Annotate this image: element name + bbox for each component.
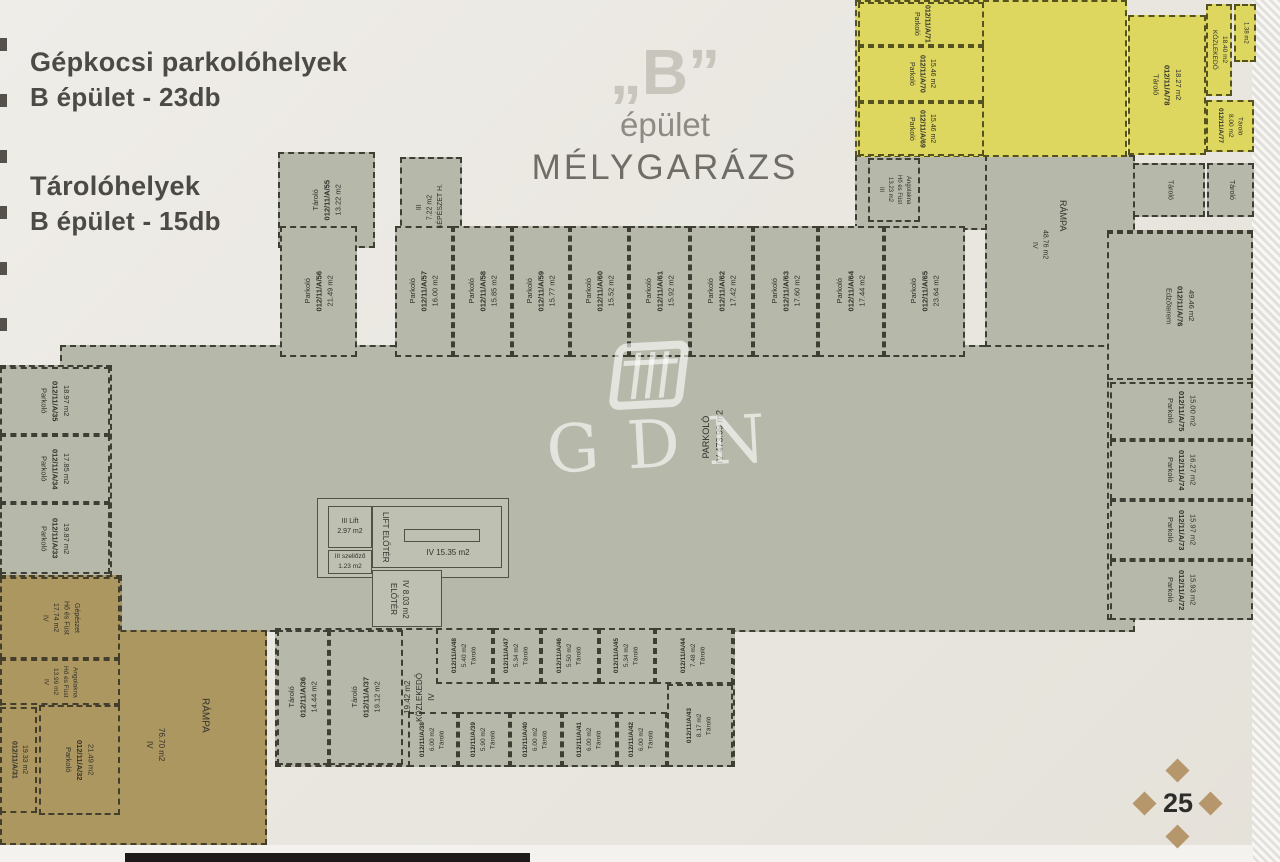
label-line: Tároló [522, 638, 532, 673]
label-line: 012/11/A/64 [845, 271, 856, 311]
room-y71: Parkoló012/11/A/71 [858, 2, 984, 46]
room-stair [404, 529, 480, 542]
label-parkolo-main: PARKOLÓIV 473.99 m2 [690, 378, 736, 496]
room-label: IV76.70 m2 [143, 728, 167, 761]
label-line: ELŐTÉR [387, 580, 399, 619]
label-line: 15.93 m2 [1187, 570, 1198, 610]
label-line: III szellőző [335, 552, 366, 562]
label-line: Parkoló [302, 271, 313, 311]
label-line: 5.40 m2 [460, 638, 470, 673]
room-y70: Parkoló012/11/A/7015.46 m2 [858, 46, 984, 102]
label-eloter: ELŐTÉRIV 8.03 m2 [382, 574, 416, 624]
room-a63: Parkoló012/11/A/6317.60 m2 [753, 226, 818, 357]
title-building-letter: „B” [520, 40, 810, 104]
room-label: Parkoló012/11/A/7416.27 m2 [1165, 450, 1199, 490]
label-line: 19.42 m2 [402, 673, 414, 722]
label-line: 012/11/A/69 [916, 110, 927, 148]
label-line: 21.49 m2 [324, 271, 335, 311]
room-a35: Parkoló012/11/A/3518.97 m2 [0, 367, 110, 435]
room-tarolo-ne1: Tároló [1133, 163, 1205, 217]
label-line: Tároló [438, 722, 448, 757]
room-label: Tároló012/11/A/3614.44 m2 [286, 677, 320, 717]
label-line: 5.34 m2 [622, 638, 632, 673]
label-rampa-ne: RÁMPA [1050, 172, 1074, 260]
label-line: 012/11/A/76 [1174, 286, 1185, 326]
room-label: Parkoló012/11/A/3221.49 m2 [63, 740, 97, 780]
room-label: Tároló [1164, 180, 1175, 200]
label-lift-eloter-area: IV 15.35 m2 [408, 546, 488, 560]
label-line: Angolakna [903, 175, 912, 204]
page-number: 25 [1160, 788, 1196, 819]
page-title: „B” épület MÉLYGARÁZS [520, 40, 810, 188]
room-a61: Parkoló012/11/A/6115.92 m2 [629, 226, 690, 357]
room-hofust-angolakna-ne: III13.23 m2Hő és FüstAngolakna [868, 158, 920, 222]
room-label: IV17.74 m2Hő és FüstGépészet [39, 601, 81, 635]
label-line: Parkoló [1165, 570, 1176, 610]
room-label: Parkoló012/11/A/5716.00 m2 [407, 271, 441, 311]
label-line: 012/11/A/71 [921, 5, 932, 43]
label-line: IV [143, 728, 155, 761]
room-label: LIFT ELŐTÉR [379, 512, 391, 563]
room-label: 012/11/A/455.34 m2Tároló [612, 638, 641, 673]
label-kozlekedo: 19.42 m2KÖZLEKEDŐIV [404, 632, 436, 762]
room-label: Tároló012/11/A/7818.27 m2 [1150, 65, 1184, 105]
room-a58: Parkoló012/11/A/5815.85 m2 [453, 226, 512, 357]
room-a41: 012/11/A/416.00 m2Tároló [562, 712, 617, 767]
title-melygarazs: MÉLYGARÁZS [520, 148, 810, 188]
label-line: 012/11/A/44 [679, 638, 689, 673]
diamond-left-icon [1132, 791, 1156, 815]
label-line: 14.44 m2 [309, 677, 320, 717]
label-line: IV 473.99 m2 [713, 410, 727, 464]
room-label: Edzőterem012/11/A/7649.46 m2 [1163, 286, 1197, 326]
legend-parking-count: B épület - 23db [30, 80, 347, 115]
label-lift-eloter-name: LIFT ELŐTÉR [376, 508, 394, 566]
label-line: 012/11/A/36 [297, 677, 308, 717]
label-line: 19.87 m2 [61, 518, 72, 558]
room-label: Parkoló012/11/A/7515.00 m2 [1165, 391, 1199, 431]
label-line: 012/11/A/39 [469, 722, 479, 757]
label-line: 012/11/A/33 [49, 518, 60, 558]
label-line: 6.00 m2 [637, 722, 647, 757]
room-label: Parkoló012/11/A/3518.97 m2 [38, 381, 72, 421]
label-line: Tároló [1150, 65, 1161, 105]
room-label: Parkoló012/11/A/7315.97 m2 [1165, 510, 1199, 550]
label-line: KÖZLEKEDŐ [414, 673, 426, 722]
label-line: Parkoló [911, 5, 922, 43]
room-y77: 012/11/A/778.00 m2Tároló [1206, 100, 1254, 152]
page-number-block: 25 [1128, 756, 1228, 856]
label-line: PARKOLÓ [700, 410, 714, 464]
room-a40: 012/11/A/406.00 m2Tároló [510, 712, 562, 767]
room-a74: Parkoló012/11/A/7416.27 m2 [1110, 440, 1253, 500]
label-line: 16.27 m2 [1187, 450, 1198, 490]
room-label: Parkoló012/11/A/6523.64 m2 [908, 271, 942, 311]
room-a45: 012/11/A/455.34 m2Tároló [599, 628, 655, 684]
floor-slab-1 [60, 345, 1135, 632]
label-line: Parkoló [63, 740, 74, 780]
label-line: Tároló [286, 677, 297, 717]
label-line: 19.33 m2 [19, 741, 30, 779]
label-line: Parkoló [38, 449, 49, 489]
room-label: Parkoló012/11/A/7015.46 m2 [905, 55, 937, 93]
label-line: 5.34 m2 [512, 638, 522, 673]
label-line: III [876, 175, 885, 204]
label-line: 012/11/A/42 [627, 722, 637, 757]
label-line: Parkoló [908, 271, 919, 311]
room-a73: Parkoló012/11/A/7315.97 m2 [1110, 500, 1253, 560]
label-line: Parkoló [583, 271, 594, 311]
label-line: 012/11/A/73 [1176, 510, 1187, 550]
label-line: 13.99 m2 [50, 666, 60, 697]
room-label: Parkoló012/11/A/6317.60 m2 [769, 271, 803, 311]
label-line: Parkoló [524, 271, 535, 311]
label-line: Hő és Füst [60, 666, 70, 697]
room-label: Parkoló012/11/A/6417.44 m2 [834, 271, 868, 311]
label-line: LIFT ELŐTÉR [379, 512, 391, 563]
room-a57: Parkoló012/11/A/5716.00 m2 [395, 226, 453, 357]
room-label: Parkoló012/11/A/3319.87 m2 [38, 518, 72, 558]
room-hofust-angolakna-sw: IV13.99 m2Hő és FüstAngolakna [0, 659, 120, 705]
label-line: 17.60 m2 [791, 271, 802, 311]
title-epulet: épület [520, 106, 810, 144]
room-a47: 012/11/A/475.34 m2Tároló [493, 628, 541, 684]
label-line: Parkoló [905, 55, 916, 93]
room-a59: Parkoló012/11/A/5915.77 m2 [512, 226, 570, 357]
label-line: 012/11/A/47 [502, 638, 512, 673]
room-a36: Tároló012/11/A/3614.44 m2 [277, 630, 329, 765]
label-line: Parkoló [1165, 391, 1176, 431]
label-line: IV [426, 673, 438, 722]
label-line: Parkoló [1165, 510, 1176, 550]
room-label: Parkoló012/11/A/6015.52 m2 [583, 271, 617, 311]
room-lift: III Lift2.97 m2 [328, 506, 372, 548]
label-line: Angolakna [70, 666, 80, 697]
room-a39: 012/11/A/395.90 m2Tároló [458, 712, 510, 767]
room-a46: 012/11/A/465.50 m2Tároló [541, 628, 599, 684]
label-line: 17.42 m2 [727, 271, 738, 311]
label-line: 17.44 m2 [857, 271, 868, 311]
label-line: Hő és Füst [894, 175, 903, 204]
room-label: 012/11/A/778.00 m2Tároló [1215, 108, 1244, 143]
label-line: 7.22 m2 [426, 184, 437, 230]
label-line: RÁMPA [1055, 200, 1069, 231]
label-line: 012/11/A/46 [555, 638, 565, 673]
room-label: ELŐTÉRIV 8.03 m2 [387, 580, 411, 619]
label-line: 7.48 m2 [689, 638, 699, 673]
label-line: 012/11/A/41 [575, 722, 585, 757]
room-a65: Parkoló012/11/A/6523.64 m2 [884, 226, 965, 357]
label-line: 19.12 m2 [372, 677, 383, 717]
label-line: 012/11/A/74 [1176, 450, 1187, 490]
label-line: Tároló [632, 638, 642, 673]
room-label: III13.23 m2Hő és FüstAngolakna [876, 175, 912, 204]
room-hofust-gepeszet: IV17.74 m2Hő és FüstGépészet [0, 577, 120, 659]
label-line: 012/11/A/61 [654, 271, 665, 311]
room-label: Parkoló012/11/A/5815.85 m2 [466, 271, 500, 311]
label-line: Tároló [1164, 180, 1175, 200]
label-line: 15.97 m2 [1187, 510, 1198, 550]
label-line: 18.27 m2 [1173, 65, 1184, 105]
label-line: 5.50 m2 [565, 638, 575, 673]
room-y-kozlekedo: KÖZLEKEDŐ18.40 m2 [1206, 4, 1232, 96]
diamond-bottom-icon [1165, 824, 1189, 848]
room-label: Parkoló012/11/A/6915.46 m2 [905, 110, 937, 148]
room-label: Parkoló012/11/A/5915.77 m2 [524, 271, 558, 311]
legend-storage-count: B épület - 15db [30, 204, 347, 239]
room-label: IV 15.35 m2 [426, 547, 469, 559]
label-line: Parkoló [905, 110, 916, 148]
label-line: 2.97 m2 [337, 527, 362, 538]
room-y-small: 1.38 m2 [1234, 4, 1256, 62]
room-label: IV13.99 m2Hő és FüstAngolakna [41, 666, 80, 697]
label-line: Edzőterem [1163, 286, 1174, 326]
diamond-top-icon [1165, 758, 1189, 782]
label-line: 15.77 m2 [547, 271, 558, 311]
label-line: 012/11/A/63 [780, 271, 791, 311]
label-line: 48.76 m2 [1039, 230, 1050, 259]
label-line: KÖZLEKEDŐ [1209, 30, 1219, 70]
room-label: RÁMPA [198, 698, 213, 733]
label-line: 1.23 m2 [335, 562, 366, 572]
label-line: 8.17 m2 [695, 708, 705, 743]
label-line: Tároló [1225, 180, 1236, 200]
label-line: Tároló [575, 638, 585, 673]
room-label: 012/11/A/416.00 m2Tároló [575, 722, 604, 757]
label-line: 012/11/A/40 [521, 722, 531, 757]
label-line: Parkoló [407, 271, 418, 311]
room-a64: Parkoló012/11/A/6417.44 m2 [818, 226, 884, 357]
label-line: IV 15.35 m2 [426, 547, 469, 559]
label-line: Tároló [594, 722, 604, 757]
room-label: 19.42 m2KÖZLEKEDŐIV [402, 673, 438, 722]
label-line: 76.70 m2 [155, 728, 167, 761]
label-line: Tároló [705, 708, 715, 743]
room-label: 012/11/A/406.00 m2Tároló [521, 722, 550, 757]
label-line: 15.92 m2 [665, 271, 676, 311]
room-label: Tároló [1225, 180, 1236, 200]
label-line: 23.64 m2 [930, 271, 941, 311]
room-a42: 012/11/A/426.00 m2Tároló [617, 712, 667, 767]
label-line: Parkoló [1165, 450, 1176, 490]
diamond-right-icon [1198, 791, 1222, 815]
label-line: IV [39, 601, 50, 635]
label-rampa-ne-area: IV48.76 m2 [1026, 214, 1052, 276]
room-label: PARKOLÓIV 473.99 m2 [700, 410, 727, 464]
room-a33: Parkoló012/11/A/3319.87 m2 [0, 503, 110, 574]
room-label: 012/11/A/485.40 m2Tároló [450, 638, 479, 673]
room-label: Parkoló012/11/A/71 [911, 5, 932, 43]
label-line: 18.40 m2 [1219, 30, 1229, 70]
label-line: Tároló [349, 677, 360, 717]
label-line: 15.46 m2 [926, 110, 937, 148]
label-line: 012/11/A/56 [313, 271, 324, 311]
label-line: 5.90 m2 [479, 722, 489, 757]
label-line: Tároló [469, 638, 479, 673]
label-line: Tároló [647, 722, 657, 757]
label-line: Hő és Füst [60, 601, 71, 635]
label-line: 13.23 m2 [885, 175, 894, 204]
label-line: Tároló [489, 722, 499, 757]
room-label: Tároló012/11/A/3719.12 m2 [349, 677, 383, 717]
room-label: 012/11/A/438.17 m2Tároló [685, 708, 714, 743]
label-line: 012/11/A/60 [594, 271, 605, 311]
label-line: 012/11/A/70 [916, 55, 927, 93]
label-line: 012/11/A/31 [8, 741, 19, 779]
label-line: IV [41, 666, 51, 697]
room-label: Parkoló012/11/A/6115.92 m2 [643, 271, 677, 311]
label-line: 15.52 m2 [605, 271, 616, 311]
label-line: Parkoló [705, 271, 716, 311]
room-label: Parkoló012/11/A/6217.42 m2 [705, 271, 739, 311]
label-line: Tároló [1235, 108, 1245, 143]
label-line: 1.38 m2 [1241, 22, 1250, 44]
room-label: RÁMPA [1055, 200, 1069, 231]
label-line: 012/11/A/34 [49, 449, 60, 489]
label-line: 6.00 m2 [531, 722, 541, 757]
label-line: RÁMPA [198, 698, 213, 733]
label-line: IV 8.03 m2 [399, 580, 411, 619]
label-line: 8.00 m2 [1225, 108, 1235, 143]
room-label: 012/11/A/447.48 m2Tároló [679, 638, 708, 673]
label-line: Tároló [541, 722, 551, 757]
label-line: 012/11/A/72 [1176, 570, 1187, 610]
room-tarolo-ne2: Tároló [1207, 163, 1254, 217]
label-rampa-sw-area: IV76.70 m2 [140, 714, 170, 776]
label-line: 012/11/A/58 [477, 271, 488, 311]
label-line: 012/11/A/37 [360, 677, 371, 717]
label-line: 012/11/A/57 [418, 271, 429, 311]
room-y78: Tároló012/11/A/7818.27 m2 [1128, 15, 1206, 155]
label-line: GÉPÉSZET H. [436, 184, 447, 230]
label-line: Parkoló [643, 271, 654, 311]
label-line: 012/11/A/43 [685, 708, 695, 743]
room-label: 012/11/A/475.34 m2Tároló [502, 638, 531, 673]
room-label: Parkoló012/11/A/3417.85 m2 [38, 449, 72, 489]
label-line: Gépészet [71, 601, 82, 635]
label-line: 17.85 m2 [61, 449, 72, 489]
label-line: III [415, 184, 426, 230]
label-line: 21.49 m2 [85, 740, 96, 780]
room-label: IV48.76 m2 [1029, 230, 1050, 259]
room-a75: Parkoló012/11/A/7515.00 m2 [1110, 382, 1253, 440]
room-label: III szellőző1.23 m2 [335, 552, 366, 572]
label-line: 15.00 m2 [1187, 391, 1198, 431]
label-line: 16.00 m2 [430, 271, 441, 311]
label-line: Parkoló [38, 381, 49, 421]
label-line: 012/11/A/78 [1161, 65, 1172, 105]
label-line: 012/11/A/35 [49, 381, 60, 421]
room-a43: 012/11/A/438.17 m2Tároló [667, 684, 733, 767]
label-line: 012/11/A/77 [1215, 108, 1225, 143]
label-line: 012/11/A/48 [450, 638, 460, 673]
room-a72: Parkoló012/11/A/7215.93 m2 [1110, 560, 1253, 620]
legend-parking-title: Gépkocsi parkolóhelyek [30, 44, 347, 80]
label-line: IV [1029, 230, 1040, 259]
room-a37: Tároló012/11/A/3719.12 m2 [329, 630, 403, 765]
room-label: 012/11/A/465.50 m2Tároló [555, 638, 584, 673]
label-line: 012/11/A/59 [535, 271, 546, 311]
room-a56: Parkoló012/11/A/5621.49 m2 [280, 226, 357, 357]
label-line: 17.74 m2 [50, 601, 61, 635]
room-edzoterem: Edzőterem012/11/A/7649.46 m2 [1107, 232, 1253, 380]
room-label: 012/11/A/3119.33 m2 [8, 741, 29, 779]
room-label: KÖZLEKEDŐ18.40 m2 [1209, 30, 1229, 70]
label-line: Parkoló [834, 271, 845, 311]
room-szellozo: III szellőző1.23 m2 [328, 550, 372, 574]
label-line: Parkoló [769, 271, 780, 311]
label-line: 15.85 m2 [488, 271, 499, 311]
label-line: 012/11/A/45 [612, 638, 622, 673]
room-label: Parkoló012/11/A/7215.93 m2 [1165, 570, 1199, 610]
label-line: Parkoló [38, 518, 49, 558]
room-label: 012/11/A/426.00 m2Tároló [627, 722, 656, 757]
room-a60: Parkoló012/11/A/6015.52 m2 [570, 226, 629, 357]
label-line: Tároló [699, 638, 709, 673]
room-y69: Parkoló012/11/A/6915.46 m2 [858, 102, 984, 156]
room-a48: 012/11/A/485.40 m2Tároló [436, 628, 493, 684]
room-label: Parkoló012/11/A/5621.49 m2 [302, 271, 336, 311]
label-line: Parkoló [466, 271, 477, 311]
legend-spacer [30, 116, 347, 168]
label-rampa-sw: RÁMPA [192, 678, 218, 752]
room-a32: Parkoló012/11/A/3221.49 m2 [39, 705, 120, 815]
legend: Gépkocsi parkolóhelyek B épület - 23db T… [30, 44, 347, 239]
room-label: 012/11/A/395.90 m2Tároló [469, 722, 498, 757]
label-line: 15.46 m2 [926, 55, 937, 93]
label-line: 012/11/A/32 [74, 740, 85, 780]
room-label: III Lift2.97 m2 [337, 517, 362, 538]
room-a44: 012/11/A/447.48 m2Tároló [655, 628, 733, 684]
room-a34: Parkoló012/11/A/3417.85 m2 [0, 435, 110, 503]
room-a62: Parkoló012/11/A/6217.42 m2 [690, 226, 753, 357]
room-label: III7.22 m2GÉPÉSZET H. [415, 184, 447, 230]
room-a31: 012/11/A/3119.33 m2 [0, 707, 37, 813]
label-line: 012/11/A/62 [716, 271, 727, 311]
legend-storage-title: Tárolóhelyek [30, 168, 347, 204]
label-line: III Lift [337, 517, 362, 528]
label-line: 012/11/A/75 [1176, 391, 1187, 431]
label-line: 6.00 m2 [585, 722, 595, 757]
room-label: 1.38 m2 [1241, 22, 1250, 44]
label-line: 49.46 m2 [1186, 286, 1197, 326]
label-line: 18.97 m2 [61, 381, 72, 421]
label-line: 012/11/A/65 [919, 271, 930, 311]
